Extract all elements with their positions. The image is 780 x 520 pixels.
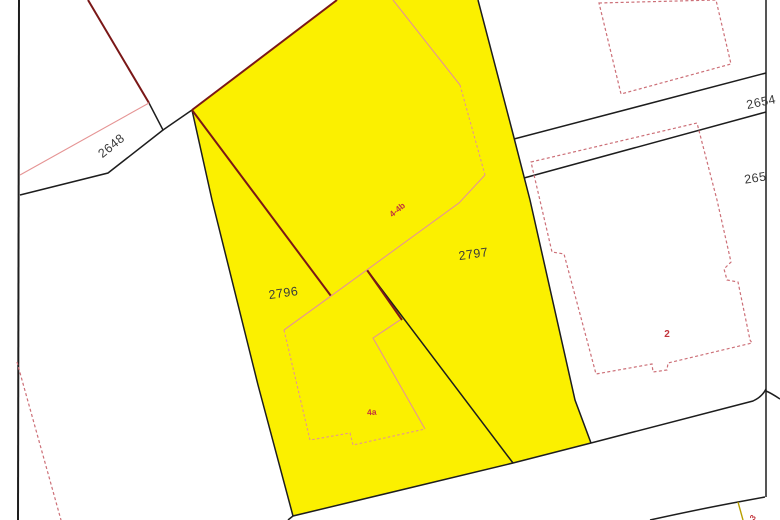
road-2654-upper-line xyxy=(514,73,766,139)
utility-olive-line xyxy=(738,502,743,520)
selected-parcels-2796-2797-fill[interactable] xyxy=(192,0,591,516)
house-label-2: 2 xyxy=(664,329,670,340)
cadastral-map: 2648 2654 265 2796 2797 4-4b 4a 2 3 xyxy=(0,0,780,520)
left-parcel-line xyxy=(18,0,19,520)
parcel-2648-pink-line xyxy=(20,103,149,175)
parcel-2648-maroon-edge xyxy=(88,0,149,103)
parcel-2648-south-edge xyxy=(20,103,163,195)
building-bottomleft-dashed-line xyxy=(17,362,61,520)
building-topright-dashed-outline xyxy=(599,0,731,94)
road-2654-lower-line xyxy=(524,112,766,178)
parcel-2648-link-to-yellow xyxy=(163,110,192,130)
parcel-label-2654: 2654 xyxy=(745,92,777,112)
parcel-label-265-clipped: 265 xyxy=(743,169,767,186)
house-label-3-clipped: 3 xyxy=(748,513,758,520)
building-2-dashed-outline xyxy=(531,123,752,374)
map-canvas: 2648 2654 265 2796 2797 4-4b 4a 2 3 xyxy=(0,0,780,520)
parcel-label-2648: 2648 xyxy=(95,131,127,161)
road-bottom-corner-curve xyxy=(766,391,780,399)
house-label-4a: 4a xyxy=(367,407,378,418)
